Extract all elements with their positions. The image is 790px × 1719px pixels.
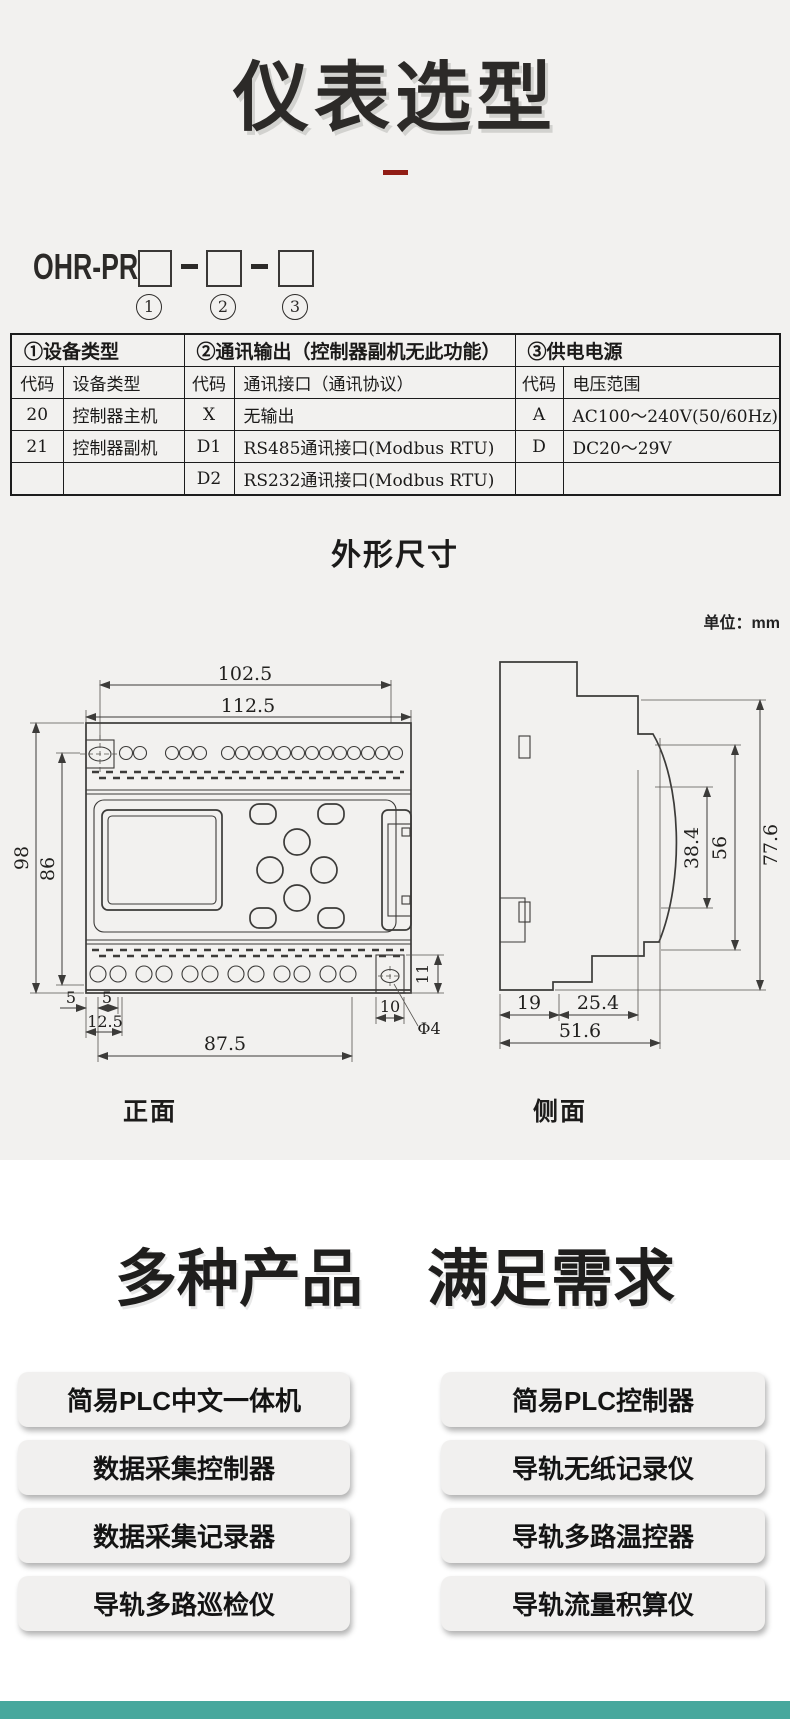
side-view-label: 侧面 xyxy=(480,1092,640,1128)
dim-102-5: 102.5 xyxy=(218,663,272,685)
table-row: D2 RS232通讯接口(Modbus RTU) xyxy=(11,463,780,496)
product-button-daq-controller[interactable]: 数据采集控制器 xyxy=(18,1440,350,1495)
cell: 控制器主机 xyxy=(63,399,184,431)
cell: 控制器副机 xyxy=(63,431,184,463)
col-header: 电压范围 xyxy=(563,367,780,399)
model-dash-1 xyxy=(181,264,198,269)
unit-label: 单位：mm xyxy=(600,609,780,633)
cell: 21 xyxy=(11,431,63,463)
title-accent-dash xyxy=(383,170,408,175)
cell: AC100～240V(50/60Hz) xyxy=(563,399,780,431)
cell xyxy=(63,463,184,496)
dim-5a: 5 xyxy=(66,988,76,1007)
page: 仪表选型 OHR-PR 1 2 3 ①设备类型 ②通讯输出（控制器副机无此功能）… xyxy=(0,0,790,1719)
products-heading-right: 满足需求 xyxy=(427,1228,675,1318)
dim-11: 11 xyxy=(413,964,432,984)
cell: X xyxy=(184,399,234,431)
front-view-label: 正面 xyxy=(70,1092,230,1128)
dim-87-5: 87.5 xyxy=(204,1033,246,1055)
table-row: 20 控制器主机 X 无输出 A AC100～240V(50/60Hz) xyxy=(11,399,780,431)
model-slot-box-2 xyxy=(206,250,242,287)
col-header: 代码 xyxy=(184,367,234,399)
products-heading: 多种产品 满足需求 xyxy=(0,1228,790,1318)
dim-25-4: 25.4 xyxy=(577,992,619,1014)
slot-number-1: 1 xyxy=(136,294,162,320)
outline-dimensions-heading: 外形尺寸 xyxy=(0,530,790,574)
products-heading-left: 多种产品 xyxy=(115,1228,363,1318)
display-window xyxy=(102,810,222,910)
dim-77-6: 77.6 xyxy=(760,824,782,866)
top-terminal-holes xyxy=(120,747,403,760)
product-button-temp-controller[interactable]: 导轨多路温控器 xyxy=(441,1508,765,1563)
cell: DC20～29V xyxy=(563,431,780,463)
dim-38-4: 38.4 xyxy=(681,827,703,869)
model-dash-2 xyxy=(251,264,268,269)
product-button-paperless-recorder[interactable]: 导轨无纸记录仪 xyxy=(441,1440,765,1495)
dim-56: 56 xyxy=(709,836,731,860)
product-button-plc-controller[interactable]: 简易PLC控制器 xyxy=(441,1372,765,1427)
dim-51-6: 51.6 xyxy=(559,1020,601,1042)
footer-bar xyxy=(0,1701,790,1719)
cell xyxy=(11,463,63,496)
cell xyxy=(563,463,780,496)
col-header: 设备类型 xyxy=(63,367,184,399)
model-code-prefix: OHR-PR xyxy=(33,246,138,288)
section-header-comm: ②通讯输出（控制器副机无此功能） xyxy=(184,334,515,367)
dim-19: 19 xyxy=(517,992,541,1014)
col-header: 代码 xyxy=(11,367,63,399)
table-section-header-row: ①设备类型 ②通讯输出（控制器副机无此功能） ③供电电源 xyxy=(11,334,780,367)
section-header-device: ①设备类型 xyxy=(11,334,184,367)
side-view-drawing: 38.4 56 77.6 19 25.4 51.6 xyxy=(455,650,790,1070)
page-title: 仪表选型 xyxy=(0,36,790,146)
front-view-drawing: 102.5 112.5 98 86 xyxy=(14,640,464,1070)
product-button-rail-scanner[interactable]: 导轨多路巡检仪 xyxy=(18,1576,350,1631)
model-slot-box-3 xyxy=(278,250,314,287)
product-button-daq-recorder[interactable]: 数据采集记录器 xyxy=(18,1508,350,1563)
cell: D2 xyxy=(184,463,234,496)
cell: D xyxy=(515,431,563,463)
product-button-plc-allinone[interactable]: 简易PLC中文一体机 xyxy=(18,1372,350,1427)
col-header: 代码 xyxy=(515,367,563,399)
slot-number-3: 3 xyxy=(282,294,308,320)
cell: 无输出 xyxy=(234,399,515,431)
dim-10: 10 xyxy=(380,997,400,1016)
cell xyxy=(515,463,563,496)
dim-98: 98 xyxy=(14,846,33,870)
section-header-power: ③供电电源 xyxy=(515,334,780,367)
cell: RS232通讯接口(Modbus RTU) xyxy=(234,463,515,496)
keypad-buttons xyxy=(250,804,344,928)
table-row: 21 控制器副机 D1 RS485通讯接口(Modbus RTU) D DC20… xyxy=(11,431,780,463)
selection-table: ①设备类型 ②通讯输出（控制器副机无此功能） ③供电电源 代码 设备类型 代码 … xyxy=(10,333,781,496)
cell: D1 xyxy=(184,431,234,463)
table-column-header-row: 代码 设备类型 代码 通讯接口（通讯协议） 代码 电压范围 xyxy=(11,367,780,399)
dim-112-5: 112.5 xyxy=(221,695,275,717)
dim-12-5: 12.5 xyxy=(87,1012,123,1031)
slot-number-2: 2 xyxy=(210,294,236,320)
col-header: 通讯接口（通讯协议） xyxy=(234,367,515,399)
dim-86: 86 xyxy=(37,857,59,881)
dim-5b: 5 xyxy=(102,988,112,1007)
bottom-terminal-holes xyxy=(90,966,356,982)
cell: RS485通讯接口(Modbus RTU) xyxy=(234,431,515,463)
model-slot-box-1 xyxy=(138,250,172,287)
cell: 20 xyxy=(11,399,63,431)
product-button-flow-totalizer[interactable]: 导轨流量积算仪 xyxy=(441,1576,765,1631)
dim-hole-dia: Φ4 xyxy=(417,1019,440,1038)
cell: A xyxy=(515,399,563,431)
